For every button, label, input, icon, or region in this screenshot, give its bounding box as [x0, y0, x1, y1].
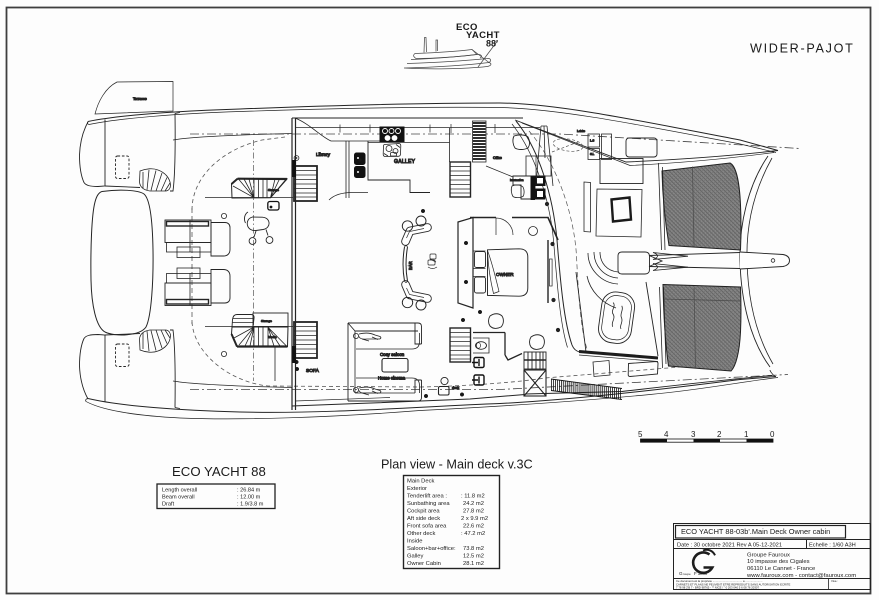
svg-text:roupe: roupe	[683, 572, 691, 576]
svg-text:Other deck: Other deck	[407, 531, 435, 537]
svg-text:Exterior: Exterior	[407, 486, 427, 492]
svg-text:Library: Library	[316, 152, 331, 157]
svg-text:Terrasse: Terrasse	[133, 97, 147, 101]
svg-text:Draft: Draft	[162, 502, 175, 508]
svg-text:: 11.8 m2: : 11.8 m2	[461, 494, 485, 500]
svg-text:Storage: Storage	[268, 188, 279, 192]
svg-text:Tenderlift area :: Tenderlift area :	[407, 494, 447, 500]
svg-text:BAR: BAR	[408, 261, 413, 270]
svg-text:3: 3	[691, 430, 696, 439]
svg-text:GALLEY: GALLEY	[394, 159, 416, 165]
svg-text:4: 4	[664, 430, 669, 439]
svg-text:OWNER: OWNER	[496, 272, 514, 277]
svg-text:Echelle : 1/60 A3H: Echelle : 1/60 A3H	[809, 542, 856, 548]
svg-text:5: 5	[638, 430, 643, 439]
svg-text:Groupe Fauroux: Groupe Fauroux	[747, 553, 790, 559]
svg-text:desk: desk	[452, 386, 459, 390]
svg-text:: 47.2 m2: : 47.2 m2	[461, 531, 485, 537]
svg-text:ECO YACHT 88-03b'.Main Deck Ow: ECO YACHT 88-03b'.Main Deck Owner cabin	[681, 527, 830, 536]
svg-text:Owner Cabin: Owner Cabin	[407, 561, 441, 567]
svg-text:Cosy saloon: Cosy saloon	[380, 352, 405, 357]
svg-text:auroux: auroux	[698, 572, 708, 576]
svg-text:Information: Information	[510, 178, 524, 182]
svg-text:Visa :: Visa :	[831, 579, 838, 583]
svg-text:2: 2	[717, 430, 722, 439]
svg-text:Main Deck: Main Deck	[407, 479, 434, 485]
svg-text:Loisirs: Loisirs	[577, 129, 586, 133]
svg-text:: 1.9/3.8 m: : 1.9/3.8 m	[237, 502, 264, 508]
svg-text:0: 0	[770, 430, 775, 439]
svg-text:Home cinema: Home cinema	[378, 376, 406, 381]
svg-text:12.5 m2: 12.5 m2	[463, 554, 484, 560]
svg-text:Media: Media	[268, 335, 277, 339]
svg-text:: 12.00 m: : 12.00 m	[237, 495, 261, 501]
svg-text:Aft side deck: Aft side deck	[407, 516, 440, 522]
svg-text:: 26.84 m: : 26.84 m	[237, 488, 261, 494]
svg-text:Storage: Storage	[261, 319, 272, 323]
svg-text:Galley: Galley	[407, 554, 424, 560]
svg-text:ECO YACHT 88: ECO YACHT 88	[172, 464, 266, 479]
svg-text:Inside: Inside	[407, 539, 422, 545]
svg-text:24.2 m2: 24.2 m2	[463, 501, 484, 507]
svg-text:SOFA: SOFA	[306, 368, 320, 374]
svg-text:Length overall: Length overall	[162, 488, 197, 494]
svg-text:S.L: S.L	[590, 152, 595, 156]
svg-text:www.fauroux.com - contact@faur: www.fauroux.com - contact@fauroux.com	[746, 573, 856, 579]
svg-text:Sunbathing area: Sunbathing area	[407, 501, 450, 507]
svg-text:Saloon+bar+office:: Saloon+bar+office:	[407, 546, 456, 552]
svg-text:Beam overall: Beam overall	[162, 495, 195, 501]
svg-text:10 impasse des Cigales: 10 impasse des Cigales	[747, 559, 810, 565]
svg-text:28.1 m2: 28.1 m2	[463, 561, 484, 567]
svg-text:1: 1	[744, 430, 749, 439]
svg-text:Cockpit area: Cockpit area	[407, 509, 440, 515]
svg-text:27.8 m2: 27.8 m2	[463, 509, 484, 515]
svg-text:22.6 m2: 22.6 m2	[463, 524, 484, 530]
svg-text:L.S: L.S	[590, 139, 594, 143]
svg-text:73.8 m2: 73.8 m2	[463, 546, 484, 552]
svg-text:88': 88'	[486, 39, 498, 49]
svg-text:06110 Le Cannet - France: 06110 Le Cannet - France	[747, 566, 816, 572]
svg-text:Front sofa area: Front sofa area	[407, 524, 447, 530]
svg-text:WIDER-PAJOT: WIDER-PAJOT	[750, 42, 855, 56]
svg-text:Office: Office	[493, 156, 502, 160]
svg-text:7 78 98 2'B 7 - BRD 98765 - **: 7 78 98 2'B 7 - BRD 98765 - ** NICE / " …	[676, 586, 759, 590]
svg-text:Date : 30 octobre 2021 R: Date : 30 octobre 2021 Rev A 05-12-2021	[677, 542, 782, 548]
svg-text:Plan view - Main deck v.3C: Plan view - Main deck v.3C	[381, 456, 533, 471]
svg-text:2 x 9.9 m2: 2 x 9.9 m2	[461, 516, 488, 522]
svg-text:F: F	[694, 571, 697, 576]
